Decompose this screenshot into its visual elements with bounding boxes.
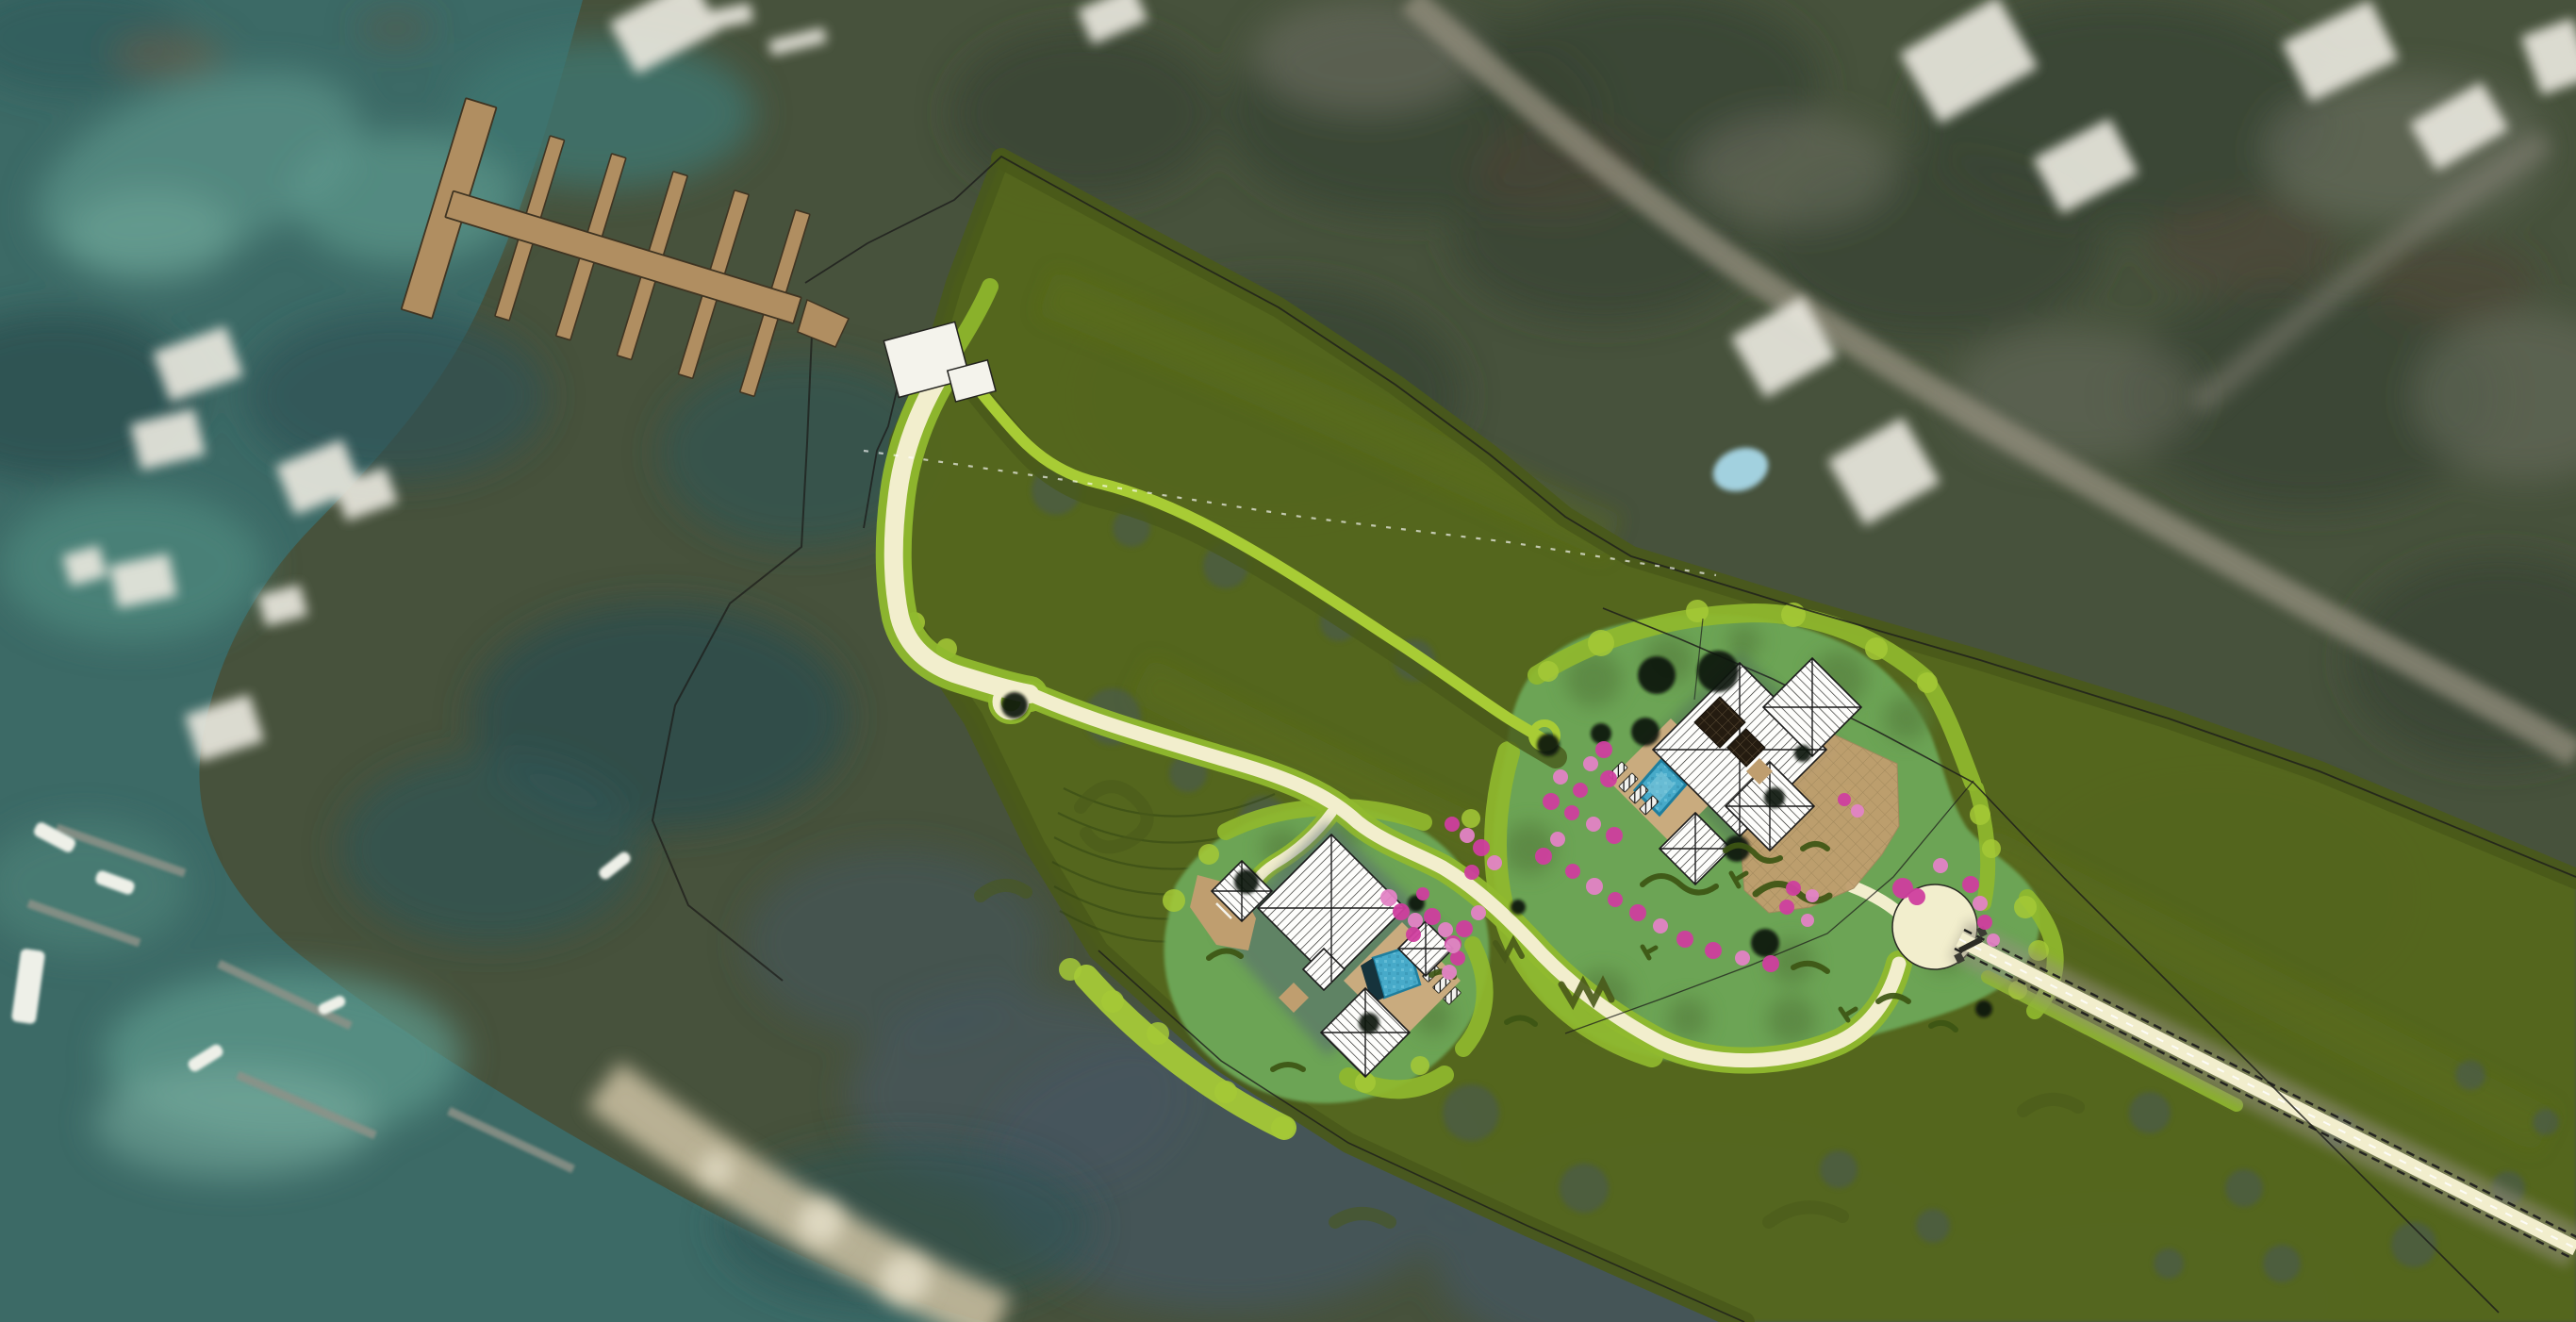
chartreuse-blotch	[1982, 839, 2001, 858]
satellite-showthrough	[2455, 1060, 2485, 1090]
chartreuse-blotch	[1198, 844, 1219, 865]
flower-dot	[1977, 915, 1992, 930]
satellite-showthrough	[1916, 1209, 1950, 1243]
chartreuse-blotch	[1686, 600, 1709, 622]
satellite-showthrough	[2129, 1092, 2171, 1133]
flower-dot	[1464, 865, 1479, 880]
flower-dot	[1424, 908, 1441, 925]
chartreuse-blotch	[2014, 896, 2037, 918]
flower-dot	[1629, 904, 1646, 921]
flower-dot	[1762, 955, 1779, 972]
chartreuse-blotch	[1163, 889, 1185, 912]
site-plan-canvas	[0, 0, 2576, 1322]
flower-dot	[1933, 858, 1948, 873]
tree-canopy-blob	[1751, 929, 1779, 957]
satellite-showthrough	[1560, 1164, 1609, 1213]
satellite-showthrough	[2533, 1109, 2559, 1135]
flower-dot	[1445, 938, 1461, 953]
flower-dot	[1416, 887, 1429, 901]
flower-dot	[1801, 914, 1814, 927]
flower-dot	[1550, 832, 1565, 847]
lawn-shade-patch	[1884, 696, 1929, 741]
flower-dot	[1471, 905, 1486, 920]
flower-dot	[1838, 793, 1851, 806]
flower-dot	[1473, 839, 1490, 856]
satellite-showthrough	[1820, 1150, 1858, 1188]
flower-dot	[1438, 922, 1453, 937]
flower-dot	[1705, 942, 1722, 959]
flower-dot	[1600, 770, 1617, 787]
flower-dot	[1806, 889, 1819, 902]
tree-canopy-blob	[1794, 745, 1811, 762]
tree-canopy-blob	[1537, 734, 1560, 756]
satellite-showthrough	[1443, 1084, 1499, 1141]
flower-dot	[1380, 889, 1397, 906]
tree-canopy-blob	[1975, 1000, 1992, 1017]
tree-canopy-blob	[1359, 1013, 1379, 1033]
flower-dot	[1962, 876, 1979, 893]
flower-dot	[1408, 913, 1423, 928]
tree-canopy-blob	[1591, 723, 1611, 744]
satellite-showthrough	[2225, 1169, 2263, 1207]
flower-dot	[1565, 864, 1580, 879]
flower-dot	[1779, 900, 1794, 915]
flower-dot	[1583, 756, 1598, 771]
tree-canopy-blob	[1638, 656, 1676, 694]
chartreuse-blotch	[1059, 958, 1082, 981]
chartreuse-blotch	[1101, 990, 1124, 1013]
flower-dot	[1487, 855, 1502, 870]
lawn-shade-patch	[1767, 996, 1816, 1045]
flower-dot	[1543, 793, 1560, 810]
flower-dot	[1535, 848, 1552, 865]
chartreuse-blotch	[1461, 809, 1480, 828]
chartreuse-blotch	[1538, 661, 1559, 682]
chartreuse-blotch	[1271, 1116, 1294, 1139]
tree-canopy-blob	[1511, 900, 1526, 915]
chartreuse-blotch	[1588, 630, 1614, 656]
flower-dot	[1606, 827, 1623, 844]
satellite-showthrough	[2391, 1222, 2436, 1267]
lawn-shade-patch	[1727, 624, 1761, 658]
flower-dot	[1987, 934, 2000, 947]
chartreuse-blotch	[1214, 1081, 1237, 1103]
flower-dot	[1573, 783, 1588, 798]
flower-dot	[1442, 965, 1457, 980]
flower-dot	[1564, 805, 1579, 820]
tree-canopy-blob	[1697, 651, 1739, 692]
site-plan-aerial-map	[0, 0, 2576, 1322]
flower-dot	[1908, 888, 1925, 905]
chartreuse-blotch	[1970, 804, 1990, 825]
lawn-shade-patch	[1503, 822, 1556, 875]
tree-canopy-blob	[1234, 869, 1259, 894]
flower-dot	[1586, 878, 1603, 895]
flower-dot	[1456, 920, 1473, 937]
satellite-showthrough	[2154, 1248, 2184, 1279]
tree-canopy-blob	[1001, 692, 1028, 719]
flower-dot	[1786, 881, 1801, 896]
flower-dot	[1735, 950, 1750, 966]
flower-dot	[1676, 931, 1693, 948]
flower-dot	[1586, 817, 1601, 832]
tree-canopy-blob	[1631, 718, 1660, 746]
flower-dot	[1393, 903, 1410, 920]
chartreuse-blotch	[1411, 1056, 1429, 1075]
flower-dot	[1553, 769, 1568, 785]
flower-dot	[1595, 741, 1612, 758]
flower-dot	[1445, 817, 1460, 832]
chartreuse-blotch	[1917, 672, 1938, 693]
lawn-shade-patch	[1667, 998, 1709, 1039]
tree-canopy-blob	[1764, 787, 1785, 808]
satellite-showthrough	[2263, 1245, 2301, 1282]
flower-dot	[1851, 804, 1864, 818]
flower-dot	[1460, 828, 1475, 843]
chartreuse-blotch	[1865, 637, 1888, 660]
flower-dot	[1406, 927, 1421, 942]
chartreuse-blotch	[1147, 1022, 1169, 1045]
flower-dot	[1973, 896, 1988, 911]
flower-dot	[1608, 892, 1623, 907]
flower-dot	[1653, 918, 1668, 934]
